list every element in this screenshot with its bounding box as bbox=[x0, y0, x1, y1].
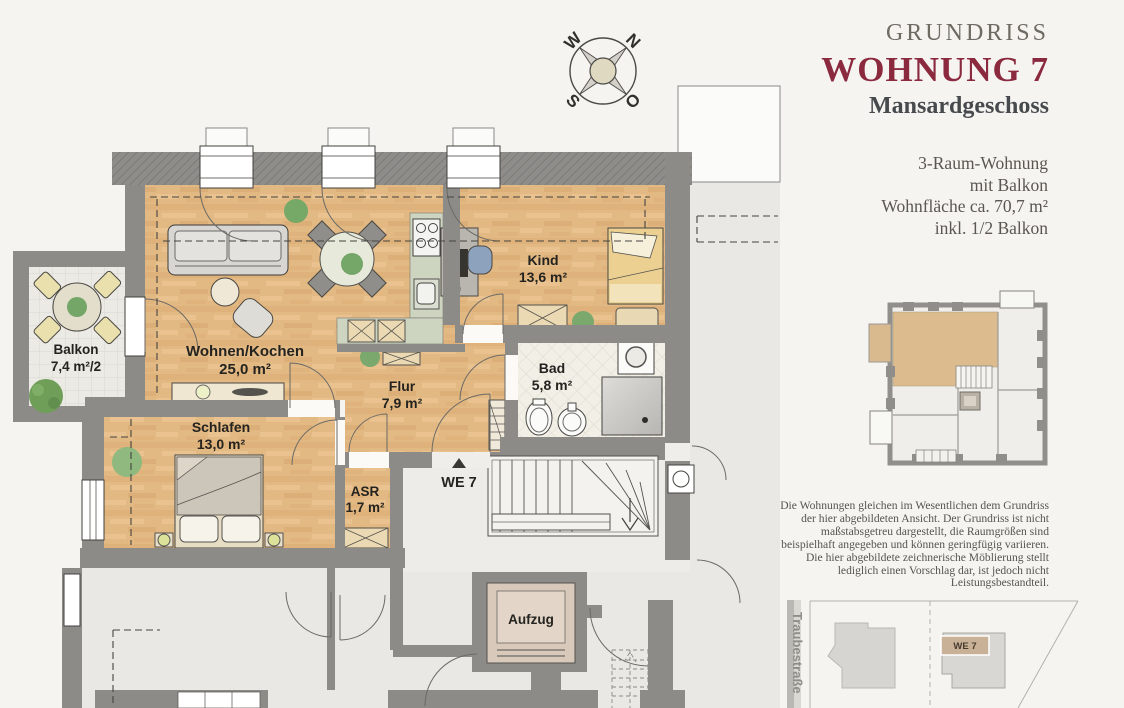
room-label-schlafen: Schlafen bbox=[192, 419, 250, 435]
detail-line: mit Balkon bbox=[881, 175, 1048, 197]
washbasin bbox=[558, 408, 586, 436]
window-dormer-2 bbox=[322, 146, 375, 188]
disclaimer-text: Die Wohnungen gleichen im Wesentlichen d… bbox=[771, 500, 1049, 590]
bedroom-window bbox=[82, 480, 104, 540]
site-building-left bbox=[828, 623, 895, 688]
neighbour-area-right bbox=[690, 150, 780, 708]
room-label-balkon: Balkon bbox=[53, 342, 98, 357]
room-area-bad: 5,8 m² bbox=[532, 377, 573, 393]
elevator: Aufzug bbox=[472, 572, 587, 672]
room-label-kind: Kind bbox=[527, 252, 558, 268]
mini-floorplan bbox=[869, 291, 1046, 463]
room-label-wohnen: Wohnen/Kochen bbox=[186, 343, 304, 360]
sofa bbox=[168, 225, 288, 275]
kids-bed bbox=[608, 228, 663, 332]
shower bbox=[602, 377, 662, 435]
room-label-bad: Bad bbox=[539, 360, 565, 376]
room-label-asr: ASR bbox=[351, 484, 380, 499]
room-area-balkon: 7,4 m²/2 bbox=[51, 359, 101, 374]
utility-box bbox=[668, 465, 694, 493]
lamp-right bbox=[268, 534, 280, 546]
main-floorplan: Aufzug bbox=[13, 24, 780, 708]
bedroom-rug bbox=[112, 447, 142, 477]
page-title: WOHNUNG 7 bbox=[821, 50, 1049, 90]
room-label-flur: Flur bbox=[389, 378, 416, 394]
neighbour-window bbox=[64, 574, 80, 626]
balcony-plant bbox=[29, 379, 63, 413]
site-unit-label: WE 7 bbox=[953, 641, 976, 652]
lamp-left bbox=[158, 534, 170, 546]
site-plan: Traubestraße WE 7 bbox=[787, 600, 1078, 708]
apartment-details: 3-Raum-Wohnung mit Balkon Wohnfläche ca.… bbox=[881, 153, 1048, 239]
compass-rose-icon: N W S O bbox=[556, 24, 649, 117]
elevator-label: Aufzug bbox=[508, 612, 554, 627]
street-label: Traubestraße bbox=[790, 612, 805, 694]
plant bbox=[284, 199, 308, 223]
window-dormer-1 bbox=[200, 146, 253, 188]
neighbour-area-bottom bbox=[80, 560, 690, 708]
room-area-flur: 7,9 m² bbox=[382, 395, 423, 411]
detail-line: Wohnfläche ca. 70,7 m² bbox=[881, 196, 1048, 218]
entrance-label: WE 7 bbox=[441, 475, 476, 491]
sideboard bbox=[172, 383, 284, 401]
detail-line: 3-Raum-Wohnung bbox=[881, 153, 1048, 175]
window-dormer-3 bbox=[447, 146, 500, 188]
room-area-schlafen: 13,0 m² bbox=[197, 436, 246, 452]
balcony-door bbox=[125, 297, 145, 356]
balcony bbox=[13, 251, 127, 422]
floor-name: Mansardgeschoss bbox=[869, 93, 1049, 120]
roof-terrace-outline bbox=[678, 86, 780, 182]
detail-line: inkl. 1/2 Balkon bbox=[881, 218, 1048, 240]
room-area-wohnen: 25,0 m² bbox=[219, 361, 271, 378]
room-area-kind: 13,6 m² bbox=[519, 269, 568, 285]
coffee-table bbox=[211, 278, 239, 306]
dining-set bbox=[308, 221, 386, 297]
brochure-page: Aufzug bbox=[0, 0, 1124, 708]
double-bed bbox=[175, 455, 263, 548]
doc-type-label: GRUNDRISS bbox=[886, 20, 1049, 47]
staircase bbox=[488, 456, 658, 536]
room-area-asr: 1,7 m² bbox=[345, 500, 385, 515]
